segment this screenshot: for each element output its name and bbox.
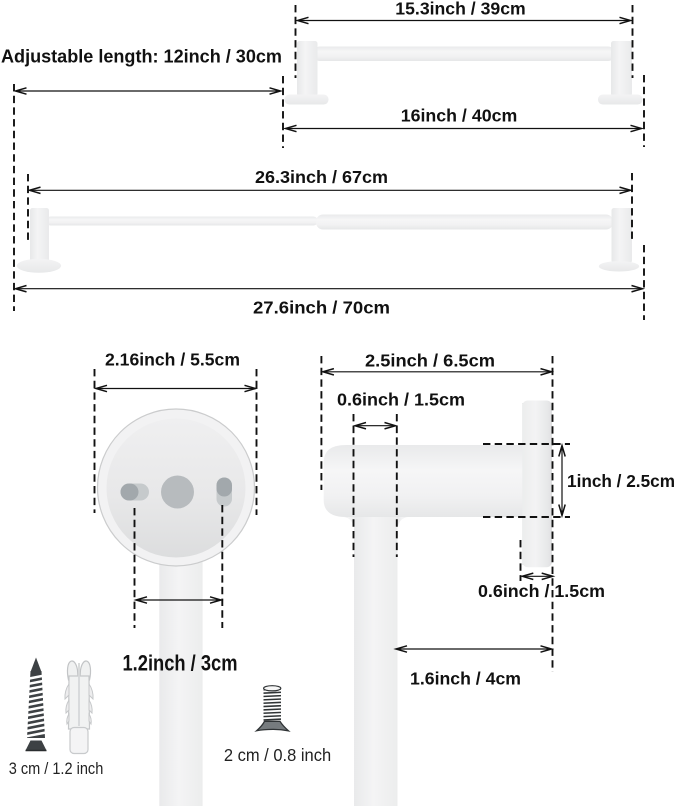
svg-text:15.3inch / 39cm: 15.3inch / 39cm: [395, 0, 525, 19]
svg-text:2 cm / 0.8 inch: 2 cm / 0.8 inch: [224, 745, 331, 765]
svg-text:1.2inch / 3cm: 1.2inch / 3cm: [123, 651, 238, 676]
svg-text:2.5inch / 6.5cm: 2.5inch / 6.5cm: [365, 351, 495, 371]
svg-text:16inch / 40cm: 16inch / 40cm: [401, 106, 518, 126]
svg-text:26.3inch / 67cm: 26.3inch / 67cm: [255, 167, 388, 187]
svg-text:27.6inch / 70cm: 27.6inch / 70cm: [253, 298, 390, 318]
svg-text:1inch / 2.5cm: 1inch / 2.5cm: [567, 471, 675, 491]
svg-text:1.6inch / 4cm: 1.6inch / 4cm: [410, 669, 521, 689]
svg-text:3 cm / 1.2 inch: 3 cm / 1.2 inch: [9, 759, 104, 778]
svg-text:0.6inch / 1.5cm: 0.6inch / 1.5cm: [478, 581, 605, 601]
svg-text:0.6inch / 1.5cm: 0.6inch / 1.5cm: [337, 390, 465, 410]
svg-text:Adjustable length: 12inch / 30: Adjustable length: 12inch / 30cm: [1, 47, 282, 67]
svg-text:2.16inch / 5.5cm: 2.16inch / 5.5cm: [105, 350, 240, 370]
